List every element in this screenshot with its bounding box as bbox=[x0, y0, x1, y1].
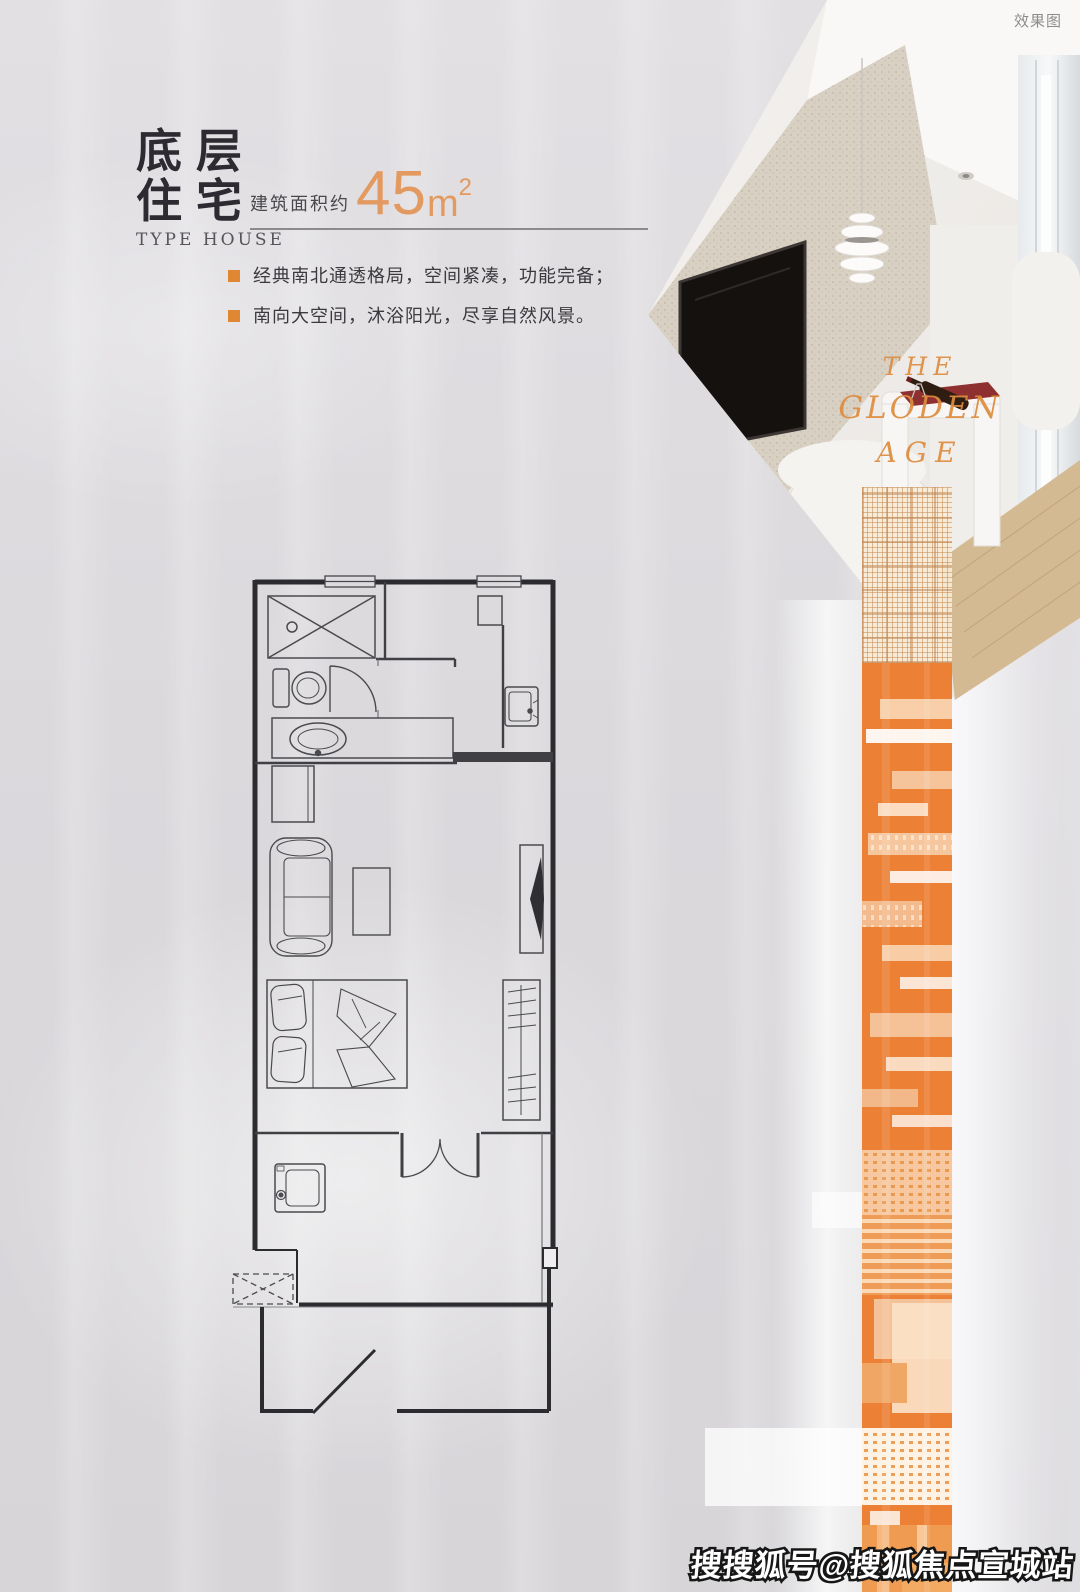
shower bbox=[268, 596, 375, 658]
watermark: 搜搜狐号@搜狐焦点宣城站 bbox=[689, 1540, 1076, 1585]
feature-text-2: 南向大空间，沐浴阳光，尽享自然风景。 bbox=[253, 306, 595, 327]
tv bbox=[530, 857, 544, 940]
render-disclaimer-label: 效果图 bbox=[1014, 10, 1062, 31]
bullet-square-icon bbox=[228, 270, 240, 282]
wardrobe bbox=[503, 980, 540, 1120]
skyline-illustration bbox=[862, 663, 952, 1592]
bathroom-door bbox=[330, 666, 376, 712]
overlay-line-2: GLODEN bbox=[828, 390, 1012, 426]
ribbon-skyline bbox=[862, 663, 952, 1592]
washing-machine bbox=[275, 1164, 325, 1212]
wall-pier bbox=[543, 1248, 557, 1268]
area-value: 45 bbox=[356, 166, 427, 222]
ribbon-crosshatch bbox=[862, 487, 952, 663]
bed bbox=[267, 980, 407, 1088]
entry-double-door bbox=[402, 1133, 478, 1177]
feature-item: 经典南北通透格局，空间紧凑，功能完备； bbox=[228, 266, 614, 287]
skyline-buildings bbox=[862, 663, 952, 1592]
area-unit: m bbox=[427, 187, 459, 221]
coffee-table bbox=[353, 868, 390, 935]
overlay-line-1: THE bbox=[828, 352, 1012, 381]
toilet bbox=[273, 669, 326, 707]
area-figure: 建筑面积约 45 m 2 bbox=[250, 166, 472, 222]
vanity-sink bbox=[272, 718, 453, 758]
garden-gate bbox=[313, 1350, 375, 1413]
header-divider bbox=[250, 228, 648, 230]
bullet-square-icon bbox=[228, 310, 240, 322]
feature-text-1: 经典南北通透格局，空间紧凑，功能完备； bbox=[253, 266, 614, 287]
area-superscript: 2 bbox=[459, 174, 472, 202]
poster-page: 底层 住宅 TYPE HOUSE 建筑面积约 45 m 2 经典南北通透格局，空… bbox=[0, 0, 1080, 1592]
kitchen-sink bbox=[505, 687, 538, 726]
title-subtitle: TYPE HOUSE bbox=[136, 230, 285, 250]
garden-walls bbox=[260, 1268, 549, 1411]
side-chair bbox=[1012, 252, 1080, 430]
white-building-glow bbox=[705, 1428, 865, 1506]
photo-overlay-caption: THE GLODEN AGE bbox=[828, 352, 1012, 469]
ac-outdoor-unit bbox=[233, 1274, 293, 1304]
feature-list: 经典南北通透格局，空间紧凑，功能完备； 南向大空间，沐浴阳光，尽享自然风景。 bbox=[228, 266, 614, 346]
sofa bbox=[270, 838, 332, 956]
bar-counter bbox=[453, 752, 553, 762]
overlay-line-3: AGE bbox=[828, 436, 1012, 469]
outer-walls bbox=[255, 580, 553, 1305]
wall-step bbox=[255, 1250, 297, 1303]
floor-plan bbox=[225, 555, 575, 1435]
area-prefix: 建筑面积约 bbox=[250, 190, 350, 216]
white-building-glow-small bbox=[812, 1192, 864, 1228]
cabinet bbox=[272, 766, 314, 822]
feature-item: 南向大空间，沐浴阳光，尽享自然风景。 bbox=[228, 306, 614, 327]
duct-shaft bbox=[478, 596, 502, 625]
